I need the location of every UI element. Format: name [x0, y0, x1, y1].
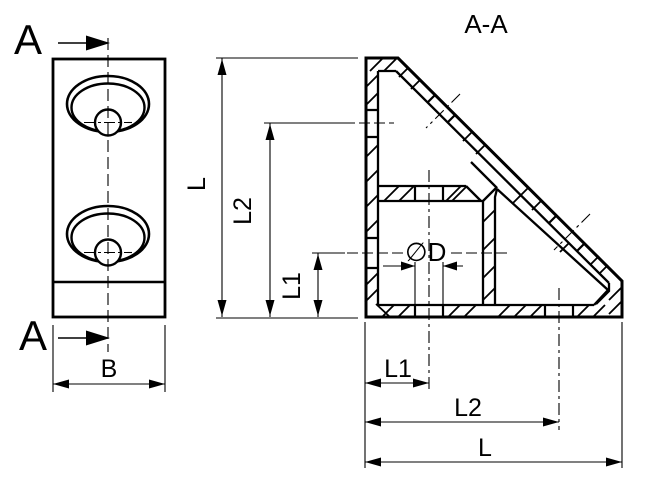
- dim-b-label: B: [101, 355, 118, 383]
- dim-diameter-label: ∅D: [405, 237, 446, 267]
- right-hollow-outline: [495, 189, 608, 305]
- cut-arrowhead-bottom-icon: [86, 331, 110, 346]
- dim-l-h-label: L: [478, 434, 492, 462]
- slot-line: [471, 162, 497, 188]
- wall-hole-edges: [365, 95, 584, 317]
- dim-l1-h-label: L1: [384, 355, 412, 383]
- dim-l1-v-label: L1: [278, 272, 306, 300]
- cut-label-top: A: [14, 16, 42, 63]
- technical-drawing-page: A-A A A B ∅D L1 L2 L L L2 L1: [0, 0, 650, 487]
- cut-label-bottom: A: [19, 312, 47, 359]
- section-hatching: [365, 58, 622, 317]
- dim-l-v-label: L: [183, 177, 211, 191]
- dim-l2-h-label: L2: [454, 394, 482, 422]
- cut-arrow-bottom: [58, 331, 110, 346]
- cut-arrowhead-top-icon: [86, 36, 110, 51]
- cut-arrow-top: [58, 36, 110, 51]
- section-title: A-A: [464, 9, 508, 39]
- dim-l2-v-label: L2: [229, 197, 257, 225]
- dims-horizontal: [365, 322, 622, 468]
- front-view: [53, 36, 165, 393]
- dim-diameter: [383, 262, 463, 305]
- drawing-canvas: A-A A A B ∅D L1 L2 L L L2 L1: [0, 0, 650, 487]
